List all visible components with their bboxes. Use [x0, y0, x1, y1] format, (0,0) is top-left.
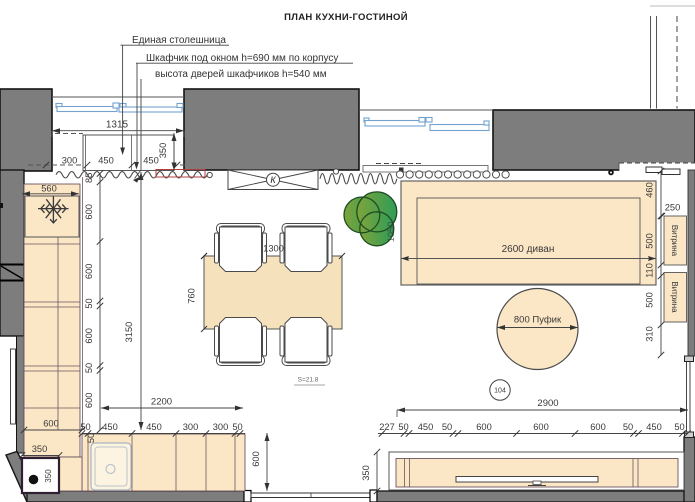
svg-text:104: 104	[494, 388, 506, 395]
svg-text:250: 250	[665, 203, 681, 213]
svg-text:450: 450	[143, 156, 159, 166]
svg-text:1300: 1300	[263, 244, 284, 254]
svg-text:350: 350	[32, 444, 48, 454]
svg-text:3150: 3150	[124, 322, 134, 343]
svg-text:600: 600	[84, 264, 94, 280]
svg-text:110: 110	[645, 263, 655, 278]
svg-text:560: 560	[41, 184, 57, 194]
svg-text:227: 227	[379, 422, 395, 432]
svg-text:Витрина: Витрина	[670, 281, 679, 313]
svg-text:S=21.8: S=21.8	[298, 377, 319, 384]
svg-text:Витрина: Витрина	[670, 225, 679, 257]
svg-text:300: 300	[213, 422, 229, 432]
svg-text:Шкафчик под окном h=690 мм по: Шкафчик под окном h=690 мм по корпусу	[146, 52, 338, 64]
svg-text:высота дверей шкафчиков h=540: высота дверей шкафчиков h=540 мм	[155, 68, 327, 80]
svg-text:600: 600	[251, 451, 261, 467]
svg-text:500: 500	[645, 233, 655, 249]
svg-text:50: 50	[84, 298, 94, 308]
svg-text:500: 500	[645, 292, 655, 308]
svg-text:800 Пуфик: 800 Пуфик	[514, 315, 562, 326]
svg-text:50: 50	[442, 422, 452, 432]
svg-text:ПЛАН КУХНИ-ГОСТИНОЙ: ПЛАН КУХНИ-ГОСТИНОЙ	[284, 11, 408, 23]
svg-text:50: 50	[623, 422, 633, 432]
svg-text:600: 600	[43, 419, 59, 429]
svg-text:85: 85	[84, 173, 94, 183]
svg-text:350: 350	[158, 143, 168, 159]
svg-text:600: 600	[84, 328, 94, 344]
svg-text:450: 450	[646, 422, 662, 432]
svg-text:1050: 1050	[386, 222, 396, 243]
svg-text:2900: 2900	[537, 398, 558, 409]
svg-text:2600 диван: 2600 диван	[502, 244, 555, 255]
svg-text:600: 600	[476, 422, 492, 432]
svg-text:50: 50	[674, 422, 684, 432]
svg-text:600: 600	[590, 422, 606, 432]
svg-text:50: 50	[232, 422, 242, 432]
svg-text:1315: 1315	[106, 120, 129, 131]
svg-text:450: 450	[102, 422, 118, 432]
svg-text:350: 350	[44, 469, 53, 483]
svg-text:К: К	[270, 175, 276, 185]
svg-text:450: 450	[418, 422, 434, 432]
svg-text:50: 50	[86, 433, 96, 443]
svg-text:300: 300	[183, 422, 199, 432]
svg-text:50: 50	[398, 422, 408, 432]
svg-text:50: 50	[84, 363, 94, 373]
svg-text:760: 760	[187, 288, 197, 304]
svg-text:50: 50	[80, 422, 90, 432]
svg-text:Единая столешница: Единая столешница	[132, 35, 226, 46]
svg-text:460: 460	[645, 182, 655, 198]
svg-text:2200: 2200	[151, 397, 172, 408]
svg-text:450: 450	[98, 156, 114, 166]
svg-text:310: 310	[645, 326, 655, 342]
svg-text:450: 450	[146, 422, 162, 432]
svg-text:600: 600	[84, 204, 94, 220]
svg-text:300: 300	[62, 156, 78, 166]
svg-text:600: 600	[84, 393, 94, 409]
svg-text:350: 350	[361, 465, 371, 481]
svg-text:600: 600	[533, 422, 549, 432]
